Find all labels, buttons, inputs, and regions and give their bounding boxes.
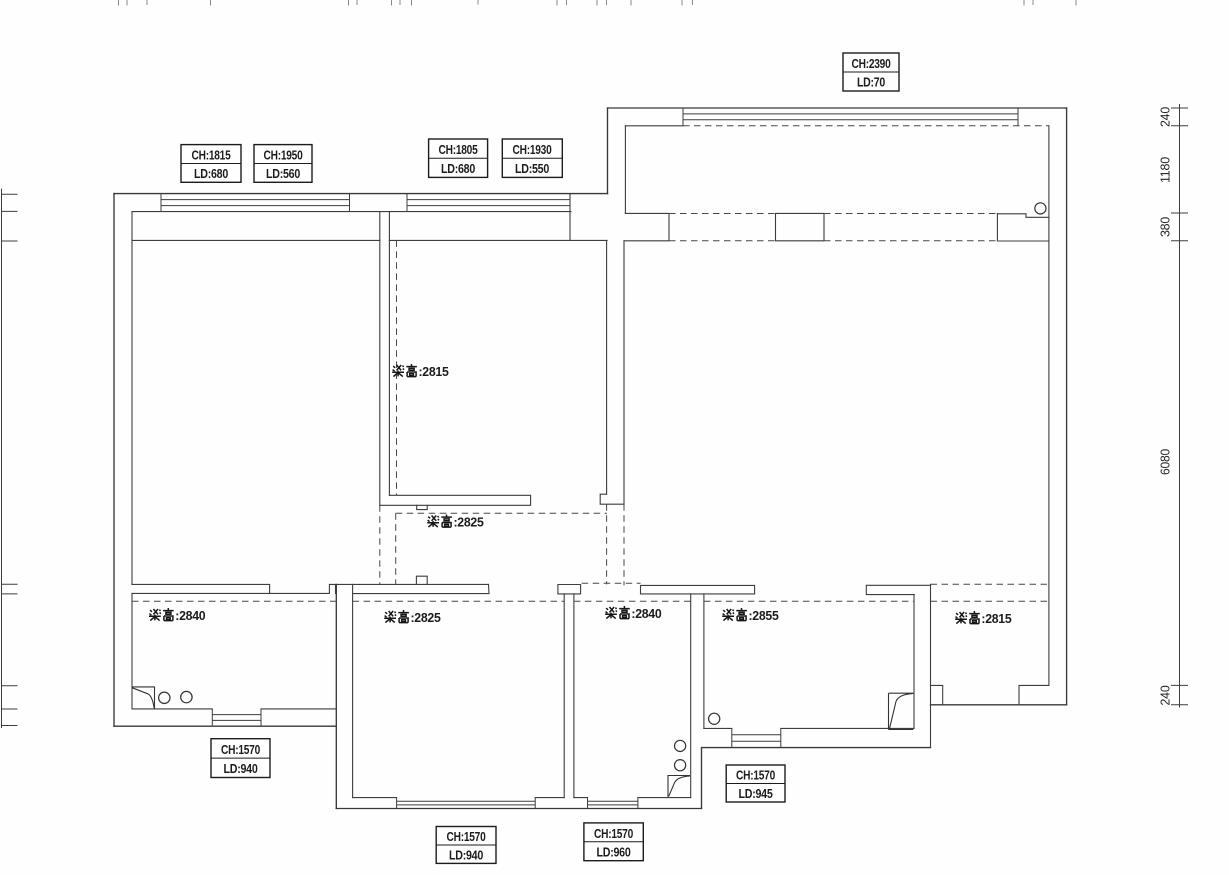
svg-text::2815: :2815 [981, 612, 1011, 626]
svg-text:LD:680: LD:680 [441, 162, 475, 176]
svg-text:CH:1570: CH:1570 [221, 743, 260, 757]
svg-text::2815: :2815 [419, 365, 449, 379]
svg-text:LD:945: LD:945 [739, 787, 773, 801]
svg-text:LD:940: LD:940 [224, 762, 258, 776]
svg-text:CH:2390: CH:2390 [852, 57, 891, 71]
svg-text::2825: :2825 [454, 516, 484, 530]
svg-text:LD:680: LD:680 [194, 167, 228, 181]
svg-text:LD:960: LD:960 [597, 845, 631, 859]
svg-text:CH:1570: CH:1570 [736, 769, 775, 783]
svg-text:CH:1570: CH:1570 [594, 827, 633, 841]
svg-text::2825: :2825 [411, 611, 441, 625]
svg-text:240: 240 [1159, 107, 1173, 127]
svg-text:CH:1930: CH:1930 [513, 143, 552, 157]
svg-text:1180: 1180 [1159, 157, 1173, 183]
svg-text:LD:70: LD:70 [857, 76, 885, 90]
svg-text:CH:1570: CH:1570 [447, 830, 486, 844]
svg-text:LD:550: LD:550 [515, 162, 549, 176]
svg-text:CH:1805: CH:1805 [439, 143, 478, 157]
svg-text:240: 240 [1159, 685, 1173, 705]
svg-text::2855: :2855 [749, 609, 779, 623]
svg-text::2840: :2840 [175, 609, 205, 623]
svg-text:LD:560: LD:560 [266, 167, 300, 181]
svg-text:CH:1950: CH:1950 [264, 149, 303, 163]
svg-text:LD:940: LD:940 [449, 849, 483, 863]
svg-text::2840: :2840 [631, 607, 661, 621]
svg-text:CH:1815: CH:1815 [192, 149, 231, 163]
svg-text:380: 380 [1159, 217, 1173, 237]
svg-text:6080: 6080 [1159, 449, 1173, 475]
